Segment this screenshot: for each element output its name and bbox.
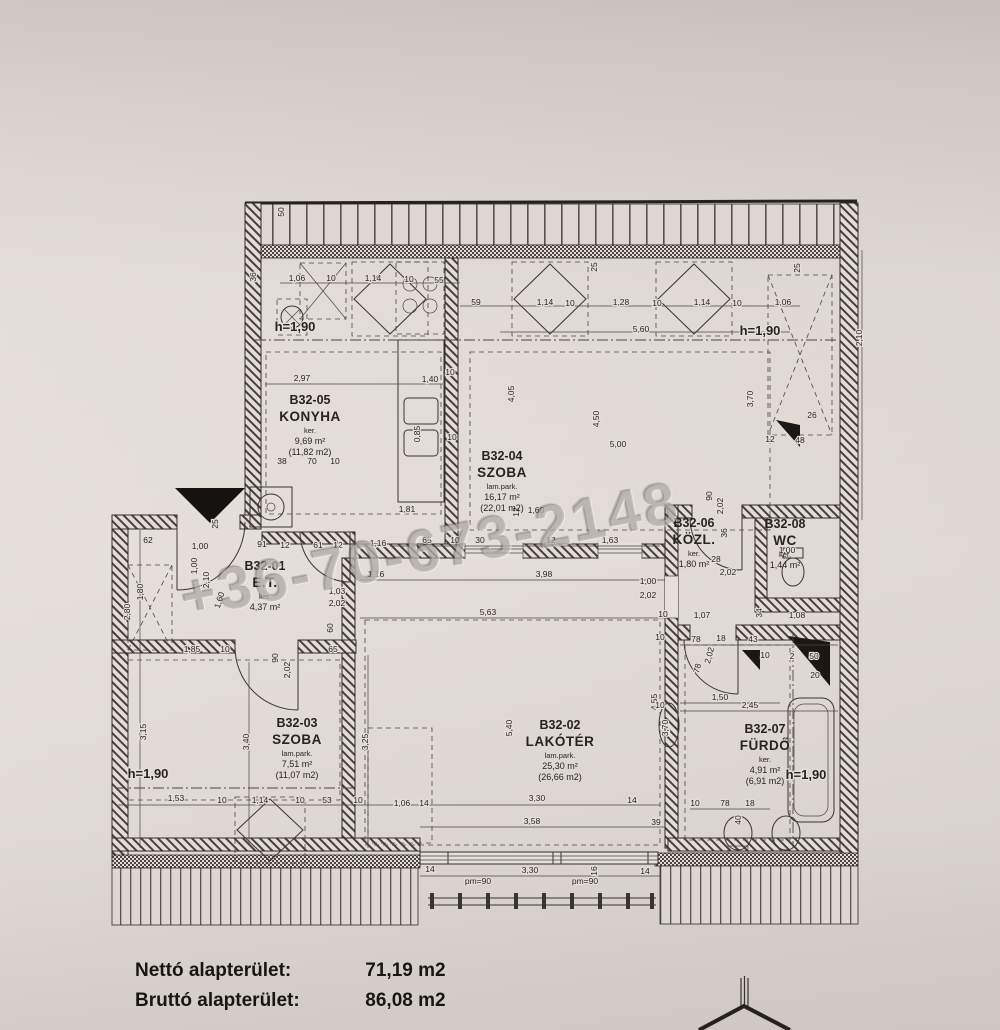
kitchen-appliance: [300, 263, 346, 319]
roof-eaves-band: [245, 201, 857, 258]
room-id: B32-04: [482, 449, 523, 463]
dimension-label: 1,85: [184, 644, 201, 654]
brutto-label: Bruttó alapterület:: [135, 990, 360, 1012]
dimension-label: 12: [280, 540, 290, 550]
room-id: B32-02: [540, 718, 581, 732]
room-area: 1,44 m²: [770, 560, 801, 570]
dimension-label: 2,02: [720, 567, 737, 577]
room-name: KONYHA: [279, 409, 341, 424]
dimension-label: 10: [450, 535, 460, 545]
room-id: B32-05: [290, 393, 331, 407]
dimension-label: 1,40: [422, 374, 439, 384]
floorplan-drawing: 50361,06101,1410555925251,14101,28101,14…: [0, 0, 1000, 1030]
dimension-label: 1,00: [189, 557, 199, 574]
room-floor: ker.: [759, 755, 771, 764]
dimension-label: 10: [445, 367, 455, 377]
dimension-label: 2,45: [742, 700, 759, 710]
dimension-label: 26: [807, 410, 817, 420]
height-label: h=1,90: [740, 323, 781, 338]
dimension-label: 39: [651, 817, 661, 827]
room-floor: ker.: [304, 426, 316, 435]
dimension-label: 28: [711, 554, 721, 564]
brutto-value: 86,08 m2: [365, 990, 445, 1012]
dimension-label: 1,14: [365, 273, 382, 283]
dimension-label: 10: [353, 795, 363, 805]
entry-door: [177, 522, 245, 590]
dimension-label: 1,08: [789, 610, 806, 620]
room-area: 9,69 m²: [295, 436, 326, 446]
dimension-label: 16: [589, 866, 599, 876]
dimension-label: 1,16: [370, 538, 387, 548]
netto-value: 71,19 m2: [365, 960, 445, 982]
skylight-kitchen: [352, 262, 428, 336]
dimension-label: 2: [790, 651, 795, 661]
dimension-label: 36: [248, 272, 258, 282]
dimension-label: 5,00: [610, 439, 627, 449]
dimension-label: 10: [655, 700, 665, 710]
dimension-label: 91: [257, 539, 267, 549]
dimension-label: 43: [748, 634, 758, 644]
dimension-label: 1,50: [712, 692, 729, 702]
bathtub: [788, 698, 834, 822]
dimension-label: 5,40: [504, 719, 514, 736]
dimension-label: 2,02: [282, 661, 292, 678]
dimension-label: 2,02: [715, 497, 725, 514]
roof-slope-left: [128, 565, 172, 650]
dimension-label: 12: [546, 535, 556, 545]
dimension-label: 10: [652, 298, 662, 308]
dimension-label: 1,06: [289, 273, 306, 283]
room-name: FÜRDŐ: [740, 738, 791, 753]
dimension-label: 25: [792, 263, 802, 273]
room-gross: (26,66 m2): [538, 772, 582, 782]
height-label: h=1,90: [275, 319, 316, 334]
dimension-label: 90: [704, 491, 714, 501]
netto-row: Nettó alapterület: 71,19 m2: [135, 960, 446, 990]
room-id: B32-07: [745, 722, 786, 736]
room-area: 7,51 m²: [282, 759, 313, 769]
dimension-label: 53: [322, 795, 332, 805]
dimension-label: 3,40: [241, 733, 251, 750]
netto-label: Nettó alapterület:: [135, 960, 360, 982]
room-area: 25,30 m²: [542, 761, 578, 771]
room-floor: ker.: [688, 549, 700, 558]
dimension-label: 12: [765, 434, 775, 444]
dimension-label: 10: [326, 273, 336, 283]
dimension-label: 55: [434, 275, 444, 285]
dimension-label: 2,97: [294, 373, 311, 383]
dimension-label: 14: [425, 864, 435, 874]
dimension-label: 4,50: [591, 410, 601, 427]
dimension-label: 1,06: [775, 297, 792, 307]
dimension-label: 90: [270, 653, 280, 663]
dimension-label: 1,07: [694, 610, 711, 620]
dimension-label: pm=90: [572, 876, 598, 886]
dimension-label: 1,06: [394, 798, 411, 808]
room-floor: lam.park.: [282, 749, 313, 758]
dimension-label: 40: [733, 815, 743, 825]
room-name: KÖZL.: [673, 532, 716, 547]
floorplan-photo: 50361,06101,1410555925251,14101,28101,14…: [0, 0, 1000, 1030]
dimension-label: 78: [720, 798, 730, 808]
dimension-label: 30: [475, 535, 485, 545]
dimension-label: 3,30: [529, 793, 546, 803]
dimension-label: 1,60: [528, 505, 545, 515]
room-floor: lam.park.: [487, 482, 518, 491]
room-floor: ker.: [779, 550, 791, 559]
dimension-label: 38: [277, 456, 287, 466]
dimension-label: 2,10: [201, 571, 211, 588]
room-name: LAKÓTÉR: [526, 734, 595, 749]
dimension-label: 10: [760, 650, 770, 660]
dimension-label: 59: [471, 297, 481, 307]
dimension-label: 20: [810, 670, 820, 680]
skylight-szoba03: [235, 797, 305, 863]
dimension-label: 1,14: [537, 297, 554, 307]
dimension-label: 34: [754, 608, 764, 618]
room-area: 16,17 m²: [484, 492, 520, 502]
walls: [112, 203, 858, 862]
dimension-label: 3,58: [524, 816, 541, 826]
dimension-label: 1,14: [252, 795, 269, 805]
dimension-label: 1,80: [135, 583, 145, 600]
dimension-label: 3,98: [536, 569, 553, 579]
room-floor: ker.: [259, 592, 271, 601]
brutto-row: Bruttó alapterület: 86,08 m2: [135, 990, 446, 1020]
height-label: h=1,90: [786, 767, 827, 782]
dimension-label: 2,02: [329, 598, 346, 608]
dimension-label: 48: [795, 435, 805, 445]
area-summary: Nettó alapterület: 71,19 m2 Bruttó alapt…: [135, 960, 446, 1020]
dimension-label: 1,00: [640, 576, 657, 586]
dimension-label: 65: [328, 644, 338, 654]
dimension-label: 70: [307, 456, 317, 466]
furniture-dashed: [368, 728, 432, 843]
dimension-label: 10: [217, 795, 227, 805]
dimension-label: 3,30: [522, 865, 539, 875]
adjacent-sheet-mark: [699, 976, 790, 1030]
dimension-label: 10: [732, 298, 742, 308]
dimension-label: 50: [809, 651, 819, 661]
dimension-label: 2,02: [640, 590, 657, 600]
dimension-label: 36: [719, 528, 729, 538]
dimension-label: pm=90: [465, 876, 491, 886]
dimension-label: 10: [658, 609, 668, 619]
height-label: h=1,90: [128, 766, 169, 781]
dimension-label: 2,80: [122, 603, 132, 620]
room-gross: (6,91 m2): [746, 776, 785, 786]
dimension-label: 14: [419, 798, 429, 808]
room-name: WC: [773, 533, 797, 548]
dimension-label: 1,14: [694, 297, 711, 307]
dimension-label: 2,10: [854, 329, 864, 346]
dimension-label: 5,60: [633, 324, 650, 334]
dimension-label: 25: [589, 262, 599, 272]
room-id: B32-03: [277, 716, 318, 730]
dimension-label: 1,81: [399, 504, 416, 514]
dimension-label: 0,85: [412, 425, 422, 442]
dimension-label: 1,16: [368, 569, 385, 579]
dimension-label: 5,63: [480, 607, 497, 617]
dimension-label: 1,53: [168, 793, 185, 803]
room-area: 4,91 m²: [750, 765, 781, 775]
dimension-label: 3,70: [660, 719, 670, 736]
dimension-label: 10: [447, 432, 457, 442]
lower-roof-terrace: [112, 852, 858, 925]
room-id: B32-08: [765, 517, 806, 531]
dimension-label: 14: [627, 795, 637, 805]
dimension-label: 3,25: [360, 733, 370, 750]
room-id: B32-01: [245, 559, 286, 573]
room-name: SZOBA: [477, 465, 527, 480]
dimension-label: 3,70: [745, 390, 755, 407]
dimension-label: 10: [404, 274, 414, 284]
dimension-label: 10: [220, 644, 230, 654]
dimension-label: 18: [716, 633, 726, 643]
dimension-label: 1,63: [602, 535, 619, 545]
room-gross: (11,82 m2): [289, 447, 332, 457]
room-gross: (11,07 m2): [276, 770, 319, 780]
dimension-label: 65: [422, 535, 432, 545]
dimension-label: 4,05: [506, 385, 516, 402]
room-name: E.T.: [252, 575, 277, 590]
dimension-label: 14: [640, 866, 650, 876]
dimension-label: 61: [313, 540, 323, 550]
entrance-marker: [175, 488, 245, 523]
dimension-label: 1,00: [192, 541, 209, 551]
dimension-label: 18: [745, 798, 755, 808]
room-name: SZOBA: [272, 732, 322, 747]
dimension-label: 10: [565, 298, 575, 308]
dimension-label: 1,28: [613, 297, 630, 307]
dimension-label: 60: [325, 623, 335, 633]
dimension-label: 10: [330, 456, 340, 466]
dimension-label: 1,60: [212, 590, 227, 609]
dimension-label: 1,03: [329, 586, 346, 596]
dimension-label: 62: [143, 535, 153, 545]
dimension-label: 78: [691, 634, 701, 644]
dimension-label: 78: [691, 662, 703, 674]
dimension-label: 25: [210, 519, 220, 529]
room-area: 1,80 m²: [679, 559, 710, 569]
dimension-label: 10: [690, 798, 700, 808]
dimension-label: 10: [655, 632, 665, 642]
room-floor: lam.park.: [545, 751, 576, 760]
room-id: B32-06: [674, 516, 715, 530]
room-area: 4,37 m²: [250, 602, 281, 612]
dimension-label: 50: [276, 207, 286, 217]
dimension-label: 2,02: [702, 646, 716, 665]
dimension-label: 12: [333, 540, 343, 550]
dimension-label: 10: [295, 795, 305, 805]
room-gross: (22,01 m2): [480, 503, 524, 513]
dimension-label: 3,15: [138, 723, 148, 740]
